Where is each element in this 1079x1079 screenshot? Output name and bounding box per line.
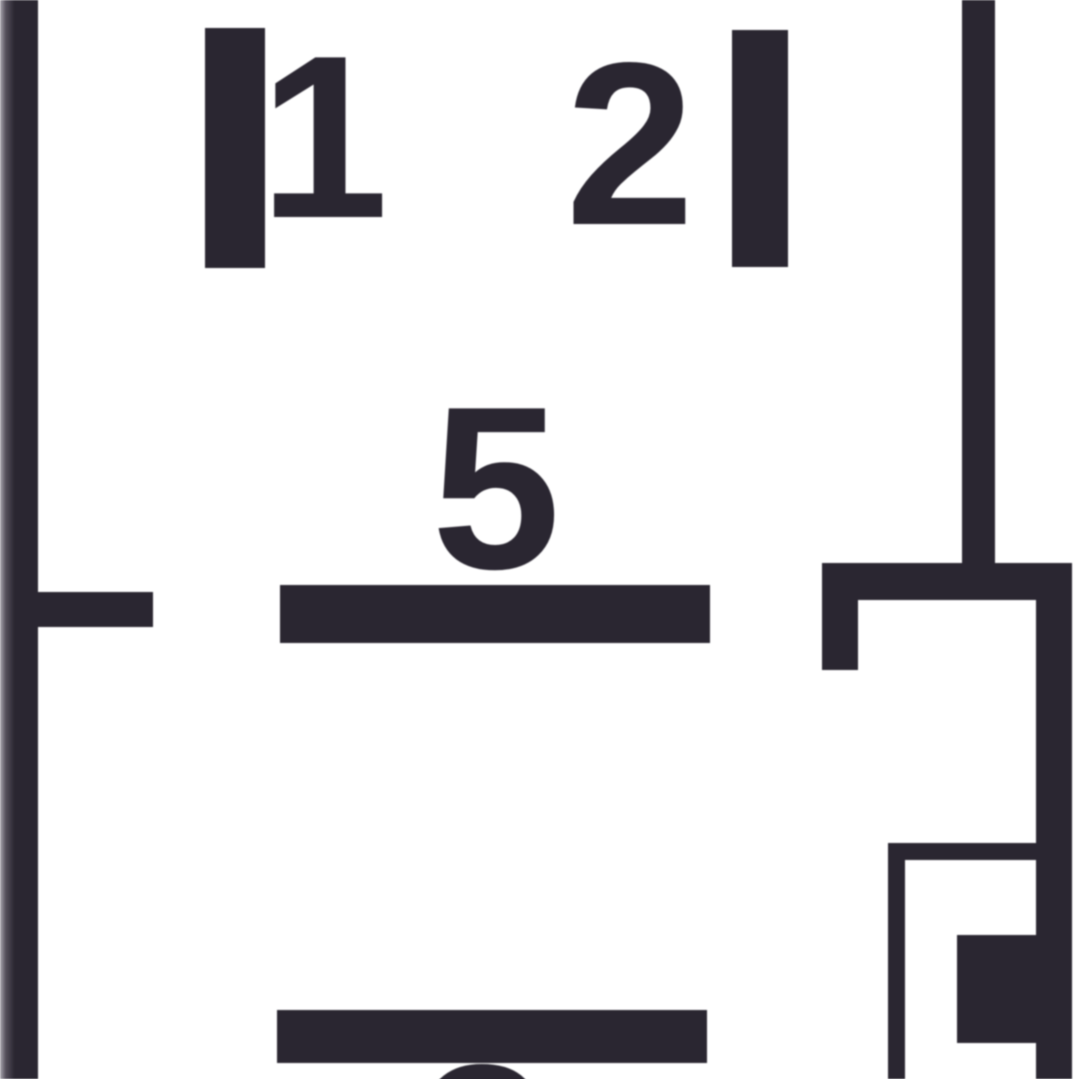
floor-plan: 1 2 5 3 [0, 0, 1079, 1079]
duct-block [957, 935, 1038, 1043]
wall-thin-vertical [888, 843, 905, 1079]
room-label-partial-clipped: 3 [413, 1031, 553, 1079]
room-label-5: 5 [426, 373, 566, 605]
wall-door-jamb-right [732, 30, 788, 267]
room-label-2: 2 [560, 29, 700, 261]
wall-right-exterior-lower [1036, 563, 1072, 1079]
floor-plan-image: 1 2 5 3 [0, 0, 1079, 1079]
wall-stub-left [37, 592, 153, 627]
room-label-1: 1 [254, 22, 394, 254]
wall-left-exterior [0, 0, 38, 1079]
wall-right-exterior-upper [962, 0, 995, 566]
wall-lintel-return-leg [822, 563, 858, 670]
wall-lintel-right [822, 563, 1071, 600]
wall-thin-horizontal [888, 843, 1036, 860]
